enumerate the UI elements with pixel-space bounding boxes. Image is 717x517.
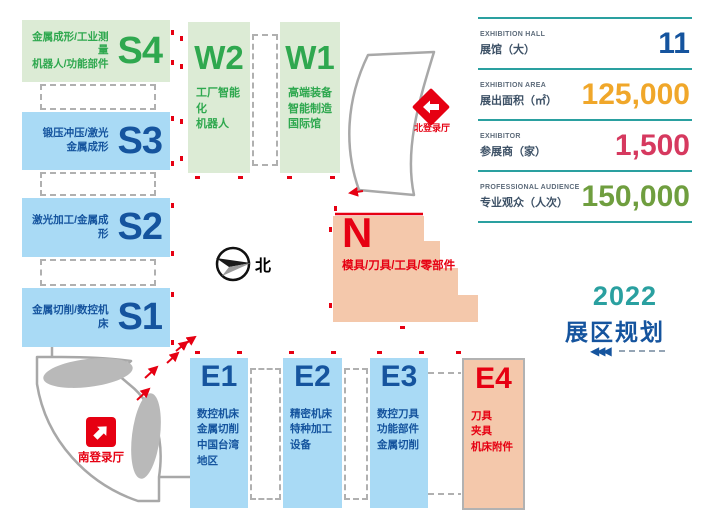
hall-S3: 锻压冲压/激光 金属成形 S3 — [22, 112, 170, 170]
stat-row-professional-audience: PROFESSIONAL AUDIENCE 专业观众（人次） 150,000 — [478, 170, 692, 221]
arrow-left-icon — [423, 101, 439, 114]
dashed-line — [619, 350, 665, 352]
hall-E1: E1 数控机床 金属切削 中国台湾地区 — [190, 358, 248, 508]
stat-label-en: EXHIBITION HALL — [480, 31, 545, 38]
hall-E2-code: E2 — [294, 363, 331, 392]
corridor-s2-s1 — [40, 259, 156, 286]
hall-W2-code: W2 — [194, 42, 244, 73]
corridor-s3-s2 — [40, 172, 156, 196]
hall-E1-code: E1 — [201, 363, 238, 392]
plan-title-marks: ◀◀◀ — [590, 345, 665, 357]
stat-label-en: EXHIBITOR — [480, 133, 546, 140]
stat-label-en: EXHIBITION AREA — [480, 82, 557, 89]
south-entrance-label: 南登录厅 — [72, 449, 130, 465]
hall-S2-description: 激光加工/金属成形 — [22, 214, 109, 241]
stat-value: 125,000 — [582, 78, 690, 112]
hall-E2-description: 精密机床 特种加工设备 — [283, 407, 342, 454]
hall-S2: 激光加工/金属成形 S2 — [22, 198, 170, 257]
hall-S2-code: S2 — [118, 209, 162, 245]
hall-W1-code: W1 — [285, 42, 335, 73]
hall-E2: E2 精密机床 特种加工设备 — [283, 358, 342, 508]
hall-E4: E4 刀具 夹具 机床附件 — [462, 358, 525, 510]
stat-label-zh: 专业观众（人次） — [480, 194, 580, 210]
hall-connector-dashes — [428, 373, 461, 494]
plan-title: 展区规划 — [525, 313, 665, 347]
hall-E4-code: E4 — [475, 365, 512, 394]
stat-row-exhibition-area: EXHIBITION AREA 展出面积（㎡） 125,000 — [478, 68, 692, 119]
corridor-w2-w1 — [252, 34, 278, 166]
hall-S1: 金属切削/数控机床 S1 — [22, 288, 170, 347]
hall-S4: 金属成形/工业测量 机器人/功能部件 S4 — [22, 20, 170, 82]
hall-W1: W1 高端装备 智能制造 国际馆 — [280, 22, 340, 173]
hall-W1-description: 高端装备 智能制造 国际馆 — [280, 86, 332, 132]
south-entrance-icon — [86, 417, 116, 447]
compass-icon — [216, 248, 251, 280]
plan-title-block: 2022 展区规划 — [525, 281, 665, 347]
stat-value: 150,000 — [582, 180, 690, 214]
hall-E3-code: E3 — [381, 363, 418, 392]
stat-value: 1,500 — [615, 129, 690, 163]
arrow-up-right-icon — [91, 422, 112, 443]
hall-E1-description: 数控机床 金属切削 中国台湾地区 — [190, 407, 248, 470]
hall-E4-description: 刀具 夹具 机床附件 — [464, 409, 513, 456]
stats-bottom-rule — [478, 221, 692, 223]
stat-label-zh: 展出面积（㎡） — [480, 92, 557, 108]
hall-S3-code: S3 — [118, 123, 162, 159]
stat-label-zh: 参展商（家） — [480, 143, 546, 159]
hall-W2-description: 工厂智能化 机器人 — [188, 86, 250, 132]
hall-S1-code: S1 — [118, 299, 162, 335]
corridor-e2-e3 — [344, 368, 368, 500]
plan-year: 2022 — [525, 281, 665, 312]
corridor-e1-e2 — [250, 368, 281, 500]
hall-E3: E3 数控刀具 功能部件 金属切削 — [370, 358, 428, 508]
hall-S4-description: 金属成形/工业测量 机器人/功能部件 — [22, 31, 109, 72]
compass-north-label: 北 — [255, 252, 271, 276]
hall-N-description: 模具/刀具/工具/零部件 — [342, 257, 502, 273]
triple-chevron-left-icon: ◀◀◀ — [590, 345, 609, 357]
exhibition-floor-plan: 金属成形/工业测量 机器人/功能部件 S4 锻压冲压/激光 金属成形 S3 激光… — [0, 0, 717, 517]
stat-row-exhibition-hall: EXHIBITION HALL 展馆（大） 11 — [478, 17, 692, 68]
hall-W2: W2 工厂智能化 机器人 — [188, 22, 250, 173]
stat-row-exhibitor: EXHIBITOR 参展商（家） 1,500 — [478, 119, 692, 170]
stat-value: 11 — [658, 27, 690, 61]
hall-S4-code: S4 — [118, 33, 162, 69]
hall-E3-description: 数控刀具 功能部件 金属切削 — [370, 407, 419, 454]
corridor-s4-s3 — [40, 84, 156, 110]
hall-S3-description: 锻压冲压/激光 金属成形 — [43, 127, 109, 154]
stat-label-en: PROFESSIONAL AUDIENCE — [480, 184, 580, 191]
stats-panel: EXHIBITION HALL 展馆（大） 11 EXHIBITION AREA… — [478, 17, 692, 223]
hall-S1-description: 金属切削/数控机床 — [22, 304, 109, 331]
stat-label-zh: 展馆（大） — [480, 41, 545, 57]
north-entrance-label: 北登录厅 — [403, 121, 461, 134]
south-concourse-shape — [37, 347, 190, 501]
